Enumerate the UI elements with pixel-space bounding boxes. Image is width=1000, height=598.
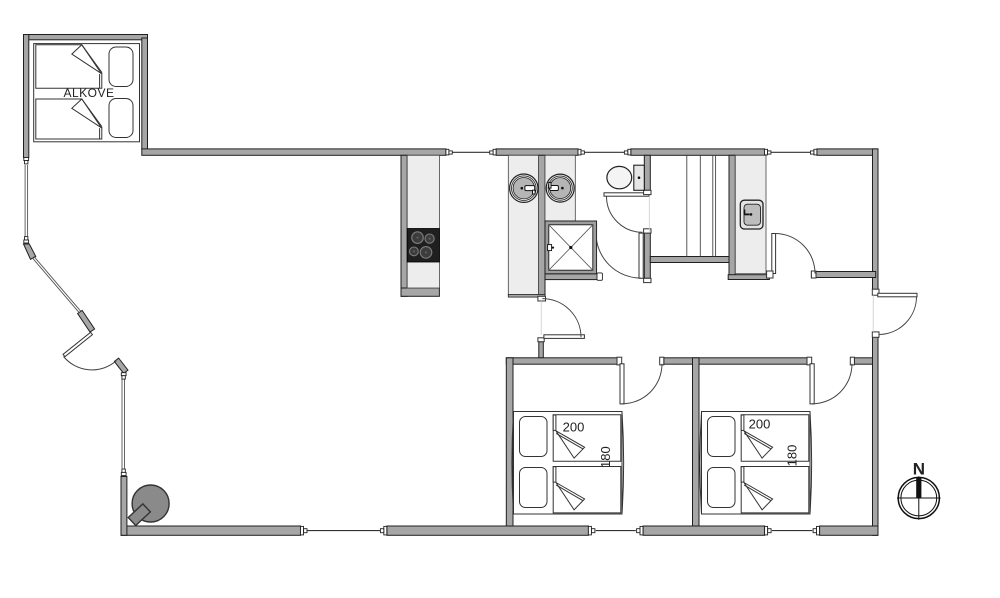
svg-text:N: N <box>913 460 925 479</box>
svg-text:200: 200 <box>563 420 585 435</box>
svg-text:180: 180 <box>785 445 800 467</box>
svg-text:180: 180 <box>598 446 613 468</box>
svg-text:200: 200 <box>749 416 771 431</box>
svg-text:ALKOVE: ALKOVE <box>63 86 114 100</box>
